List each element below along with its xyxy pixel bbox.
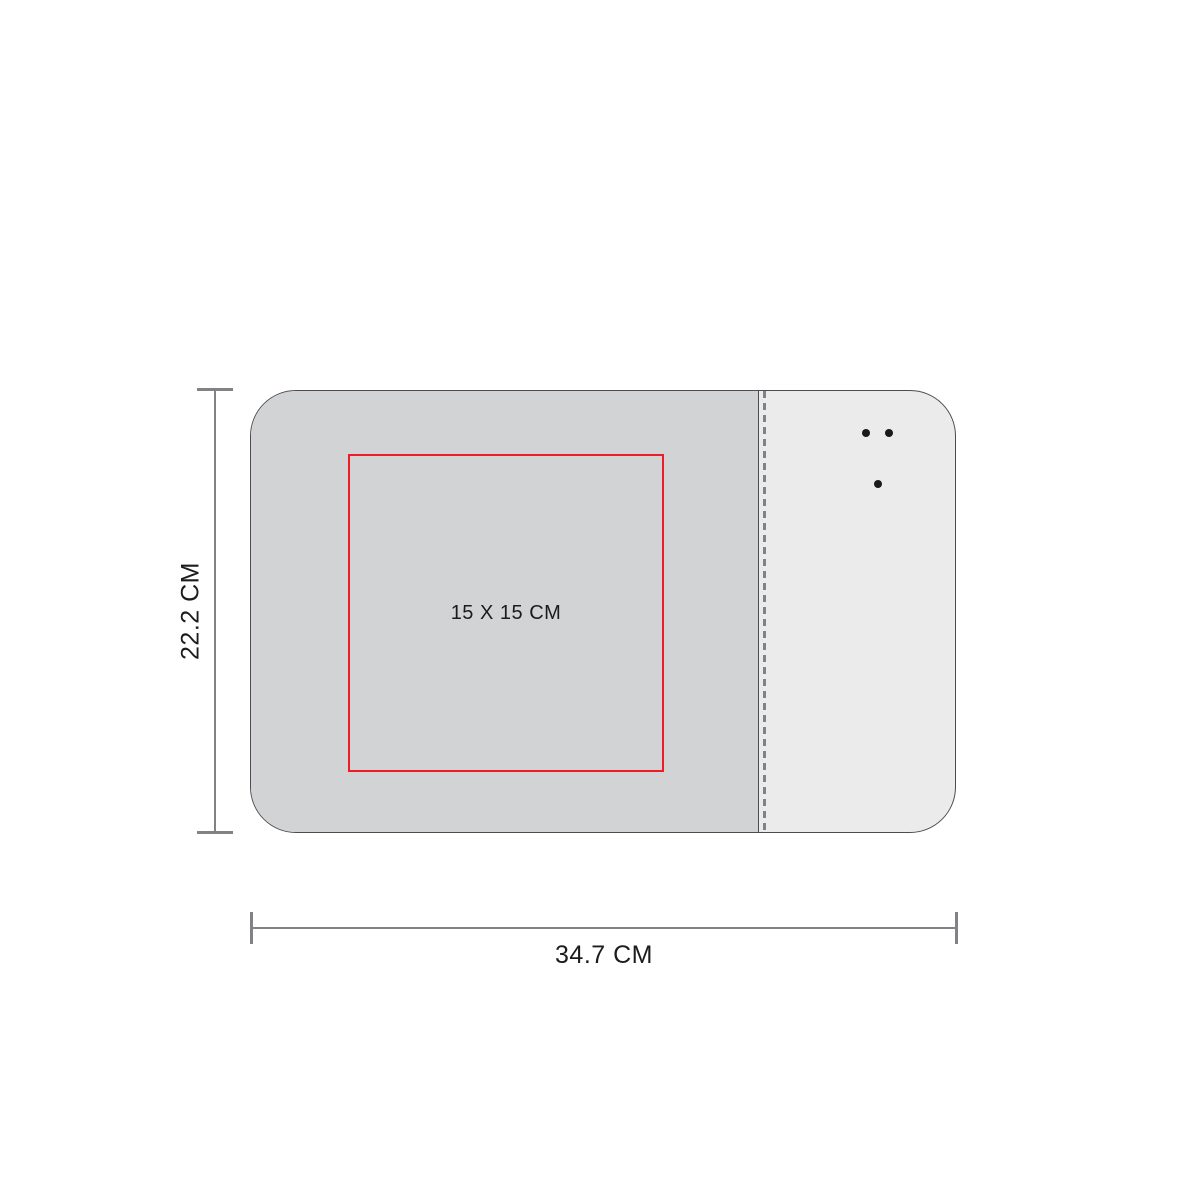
dashed-divider-line (763, 391, 766, 832)
width-dimension-line (251, 927, 957, 929)
print-area-box: 15 X 15 CM (348, 454, 664, 772)
height-dimension-line (214, 389, 216, 833)
height-dimension-tick-bottom (197, 831, 233, 834)
height-dimension-tick-top (197, 388, 233, 391)
indicator-dot-icon (885, 429, 893, 437)
height-dimension-label: 22.2 CM (177, 562, 206, 660)
width-dimension-label: 34.7 CM (555, 941, 653, 970)
product-outline: 15 X 15 CM (250, 390, 956, 833)
indicator-dot-icon (874, 480, 882, 488)
width-dimension-tick-right (955, 912, 958, 944)
dimension-diagram: 15 X 15 CM 22.2 CM 34.7 CM (0, 0, 1200, 1200)
width-dimension-tick-left (250, 912, 253, 944)
indicator-dot-icon (862, 429, 870, 437)
print-area-label: 15 X 15 CM (451, 602, 562, 625)
